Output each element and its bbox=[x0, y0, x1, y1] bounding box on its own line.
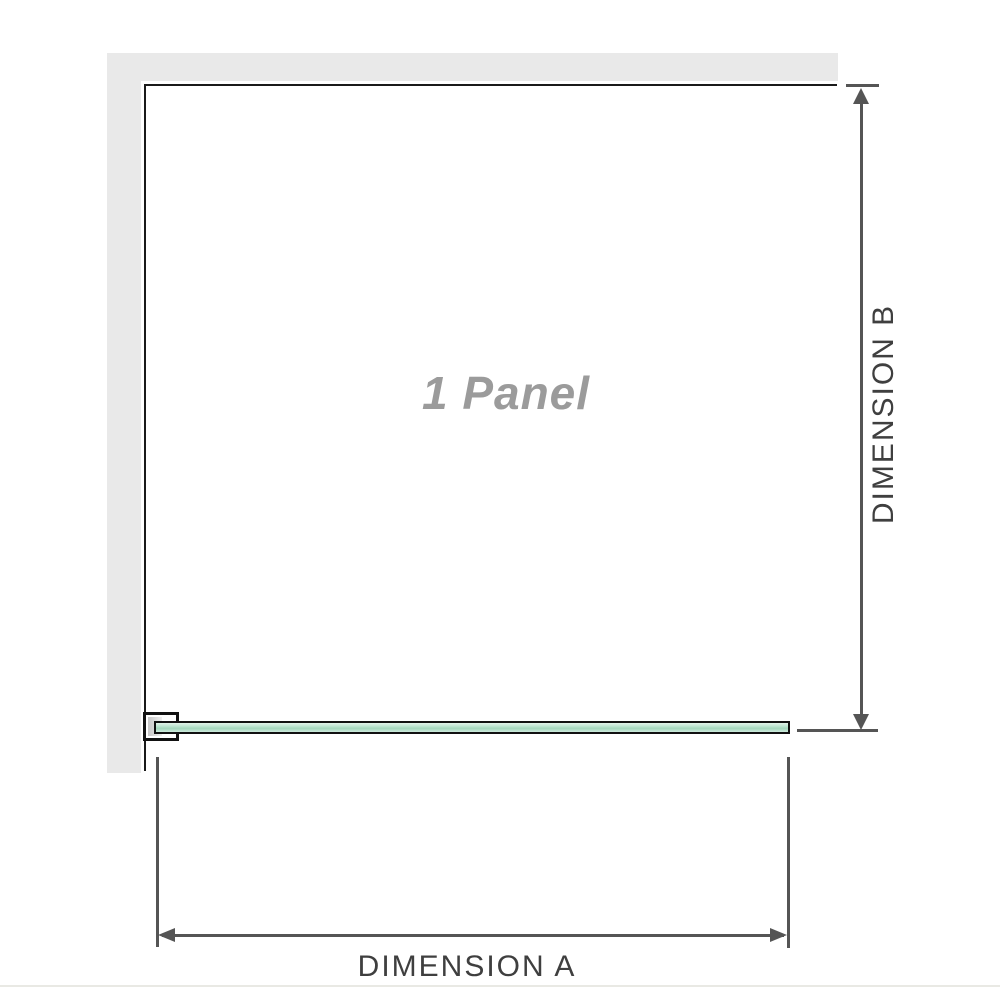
panel-outline-left bbox=[144, 84, 146, 771]
panel-count-label: 1 Panel bbox=[376, 366, 636, 420]
dimension-b-tick-top bbox=[846, 84, 879, 87]
dimension-b-label: DIMENSION B bbox=[867, 304, 901, 524]
diagram-canvas: 1 Panel DIMENSION B DIMENSION A bbox=[0, 0, 1000, 1000]
dimension-b-arrow-down-icon bbox=[853, 714, 869, 730]
wall-left bbox=[107, 53, 141, 773]
dimension-b-arrow-up-icon bbox=[853, 88, 869, 104]
dimension-a-arrow-right-icon bbox=[770, 928, 787, 942]
dimension-b-line bbox=[860, 100, 863, 718]
panel-outline-top bbox=[144, 84, 837, 86]
dimension-a-arrow-left-icon bbox=[158, 928, 175, 942]
glass-panel bbox=[154, 721, 790, 734]
dimension-a-label: DIMENSION A bbox=[358, 950, 577, 984]
wall-top bbox=[107, 53, 838, 81]
dimension-a-line bbox=[162, 934, 784, 937]
dimension-a-extension-left bbox=[156, 757, 159, 947]
dimension-a-extension-right bbox=[787, 757, 790, 948]
page-baseline-divider bbox=[0, 985, 1000, 987]
